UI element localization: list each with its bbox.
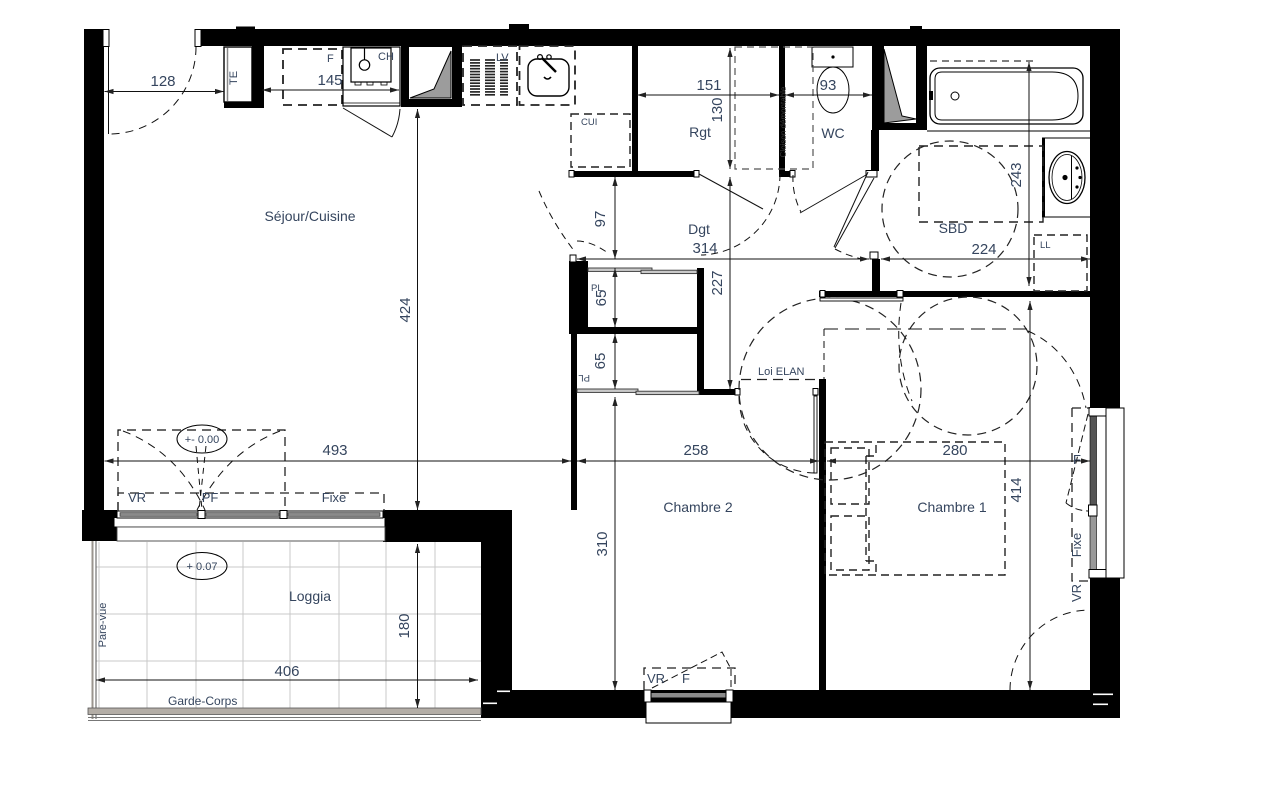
svg-text:Cloison démontable: Cloison démontable [779,86,788,157]
svg-text:227: 227 [709,270,726,295]
svg-text:424: 424 [397,297,414,322]
svg-text:WC: WC [821,125,844,141]
svg-text:145: 145 [317,72,342,89]
svg-text:F: F [327,53,334,65]
svg-text:Pare-vue: Pare-vue [97,603,109,648]
svg-text:414: 414 [1008,477,1025,502]
svg-text:Loggia: Loggia [289,588,331,604]
svg-text:180: 180 [396,613,413,638]
svg-text:130: 130 [709,97,726,122]
svg-text:F: F [682,671,690,686]
svg-text:Séjour/Cuisine: Séjour/Cuisine [264,208,355,224]
svg-text:224: 224 [971,241,996,258]
svg-text:+- 0.00: +- 0.00 [185,434,220,446]
svg-text:PL: PL [578,372,590,383]
svg-text:Dgt: Dgt [688,221,710,237]
svg-text:TE: TE [228,71,240,85]
svg-text:CUI: CUI [581,117,597,128]
svg-text:CH: CH [378,51,394,63]
svg-text:314: 314 [692,240,717,257]
svg-text:SBD: SBD [939,220,968,236]
svg-text:65: 65 [592,353,609,370]
svg-text:+ 0.07: + 0.07 [187,561,218,573]
svg-text:93: 93 [820,77,837,94]
svg-text:LV: LV [496,52,509,64]
svg-text:PL: PL [591,283,603,294]
svg-text:128: 128 [150,73,175,90]
svg-text:F: F [1073,452,1081,467]
svg-text:Loi ELAN: Loi ELAN [758,366,805,378]
svg-text:Rgt: Rgt [689,124,711,140]
svg-text:VR: VR [128,490,146,505]
svg-text:VR: VR [1069,584,1084,602]
svg-text:LL: LL [1040,240,1051,251]
svg-text:151: 151 [696,77,721,94]
svg-text:VR: VR [647,671,665,686]
svg-text:Garde-Corps: Garde-Corps [168,694,237,708]
svg-text:258: 258 [683,442,708,459]
svg-text:Chambre 2: Chambre 2 [663,499,732,515]
svg-text:Fixe: Fixe [322,490,347,505]
svg-text:Chambre 1: Chambre 1 [917,499,986,515]
svg-text:Fixe: Fixe [1069,533,1084,558]
svg-text:280: 280 [942,442,967,459]
svg-text:97: 97 [592,211,609,228]
svg-text:493: 493 [322,442,347,459]
svg-text:406: 406 [274,663,299,680]
svg-text:310: 310 [594,531,611,556]
svg-text:243: 243 [1008,162,1025,187]
svg-text:PF: PF [202,490,219,505]
